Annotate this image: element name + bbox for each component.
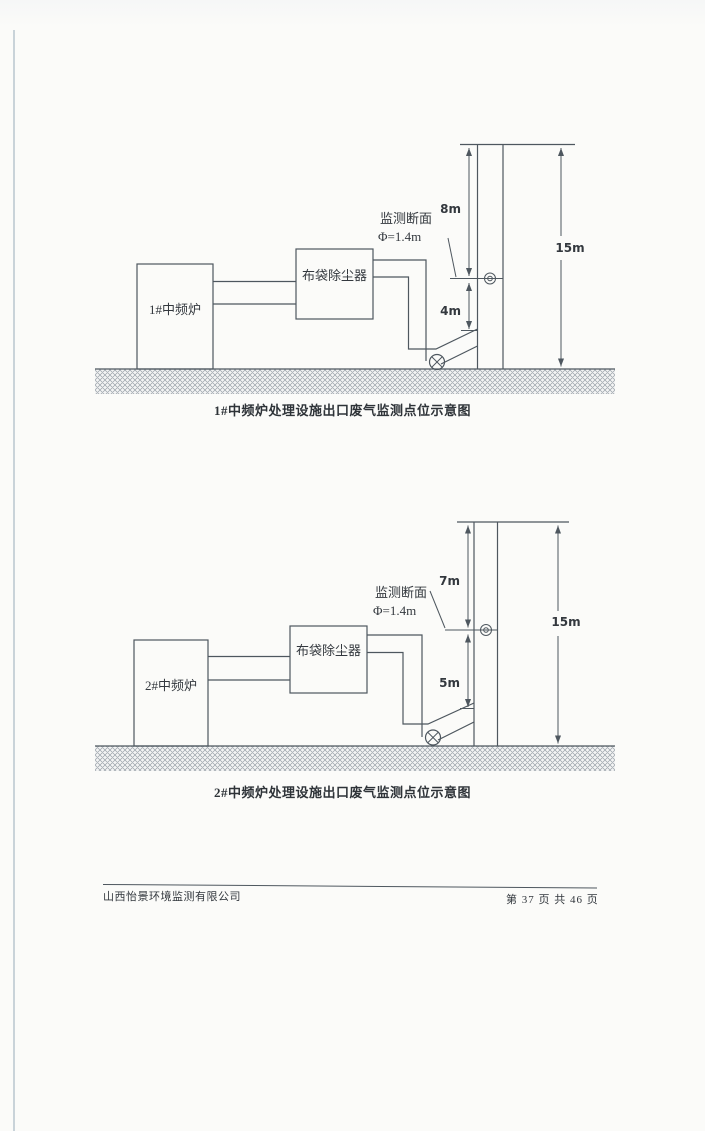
section-leader-line [430, 591, 445, 628]
stack [457, 522, 569, 746]
ground [95, 746, 615, 771]
furnace-collector-duct [213, 282, 296, 305]
dim-total: 15m [551, 526, 580, 744]
dim-upper-label: 8m [440, 202, 461, 216]
furnace-box [134, 640, 208, 746]
dust-collector-box [296, 249, 373, 319]
collector-stack-duct [373, 260, 478, 364]
dim-upper-label: 7m [439, 574, 460, 588]
stack [460, 145, 575, 370]
furnace-label: 2#中频炉 [145, 678, 197, 693]
dim-lower: 5m [439, 635, 474, 709]
monitoring-section [448, 238, 503, 284]
ground [95, 369, 615, 394]
footer-page-number: 第 37 页 共 46 页 [506, 891, 599, 907]
scan-artifact-left-edge [13, 30, 15, 1131]
diagram-2-caption: 2#中频炉处理设施出口废气监测点位示意图 [0, 782, 685, 801]
section-label-line1: 监测断面 [380, 211, 432, 226]
dim-total-label: 15m [551, 615, 580, 629]
dust-collector-box [290, 626, 367, 693]
section-label-line1: 监测断面 [375, 585, 427, 600]
dim-lower-label: 4m [440, 304, 461, 318]
dim-lower: 4m [440, 283, 477, 331]
fan-icon [430, 355, 445, 370]
section-label-line2: Φ=1.4m [378, 229, 421, 244]
scanned-page: 1#中频炉 布袋除尘器 [0, 0, 705, 1131]
dim-total-label: 15m [555, 241, 584, 255]
dim-total: 15m [555, 148, 584, 367]
furnace-label: 1#中频炉 [149, 302, 201, 317]
section-leader-line [448, 238, 456, 277]
footer-company-name: 山西怡景环境监测有限公司 [103, 888, 241, 904]
dim-lower-label: 5m [439, 676, 460, 690]
dust-collector-label: 布袋除尘器 [302, 268, 367, 283]
dim-upper: 7m [439, 526, 468, 628]
fan-icon [426, 730, 441, 745]
monitoring-section [430, 591, 498, 636]
diagram-2-monitoring-schematic: 2#中频炉 布袋除尘器 [90, 510, 620, 785]
section-label-line2: Φ=1.4m [373, 603, 416, 618]
diagram-1-monitoring-schematic: 1#中频炉 布袋除尘器 [90, 130, 620, 410]
scan-artifact-top [0, 0, 705, 26]
furnace-collector-duct [208, 657, 290, 681]
dim-upper: 8m [440, 148, 469, 276]
dust-collector-label: 布袋除尘器 [296, 643, 361, 658]
diagram-1-caption: 1#中频炉处理设施出口废气监测点位示意图 [0, 400, 685, 419]
